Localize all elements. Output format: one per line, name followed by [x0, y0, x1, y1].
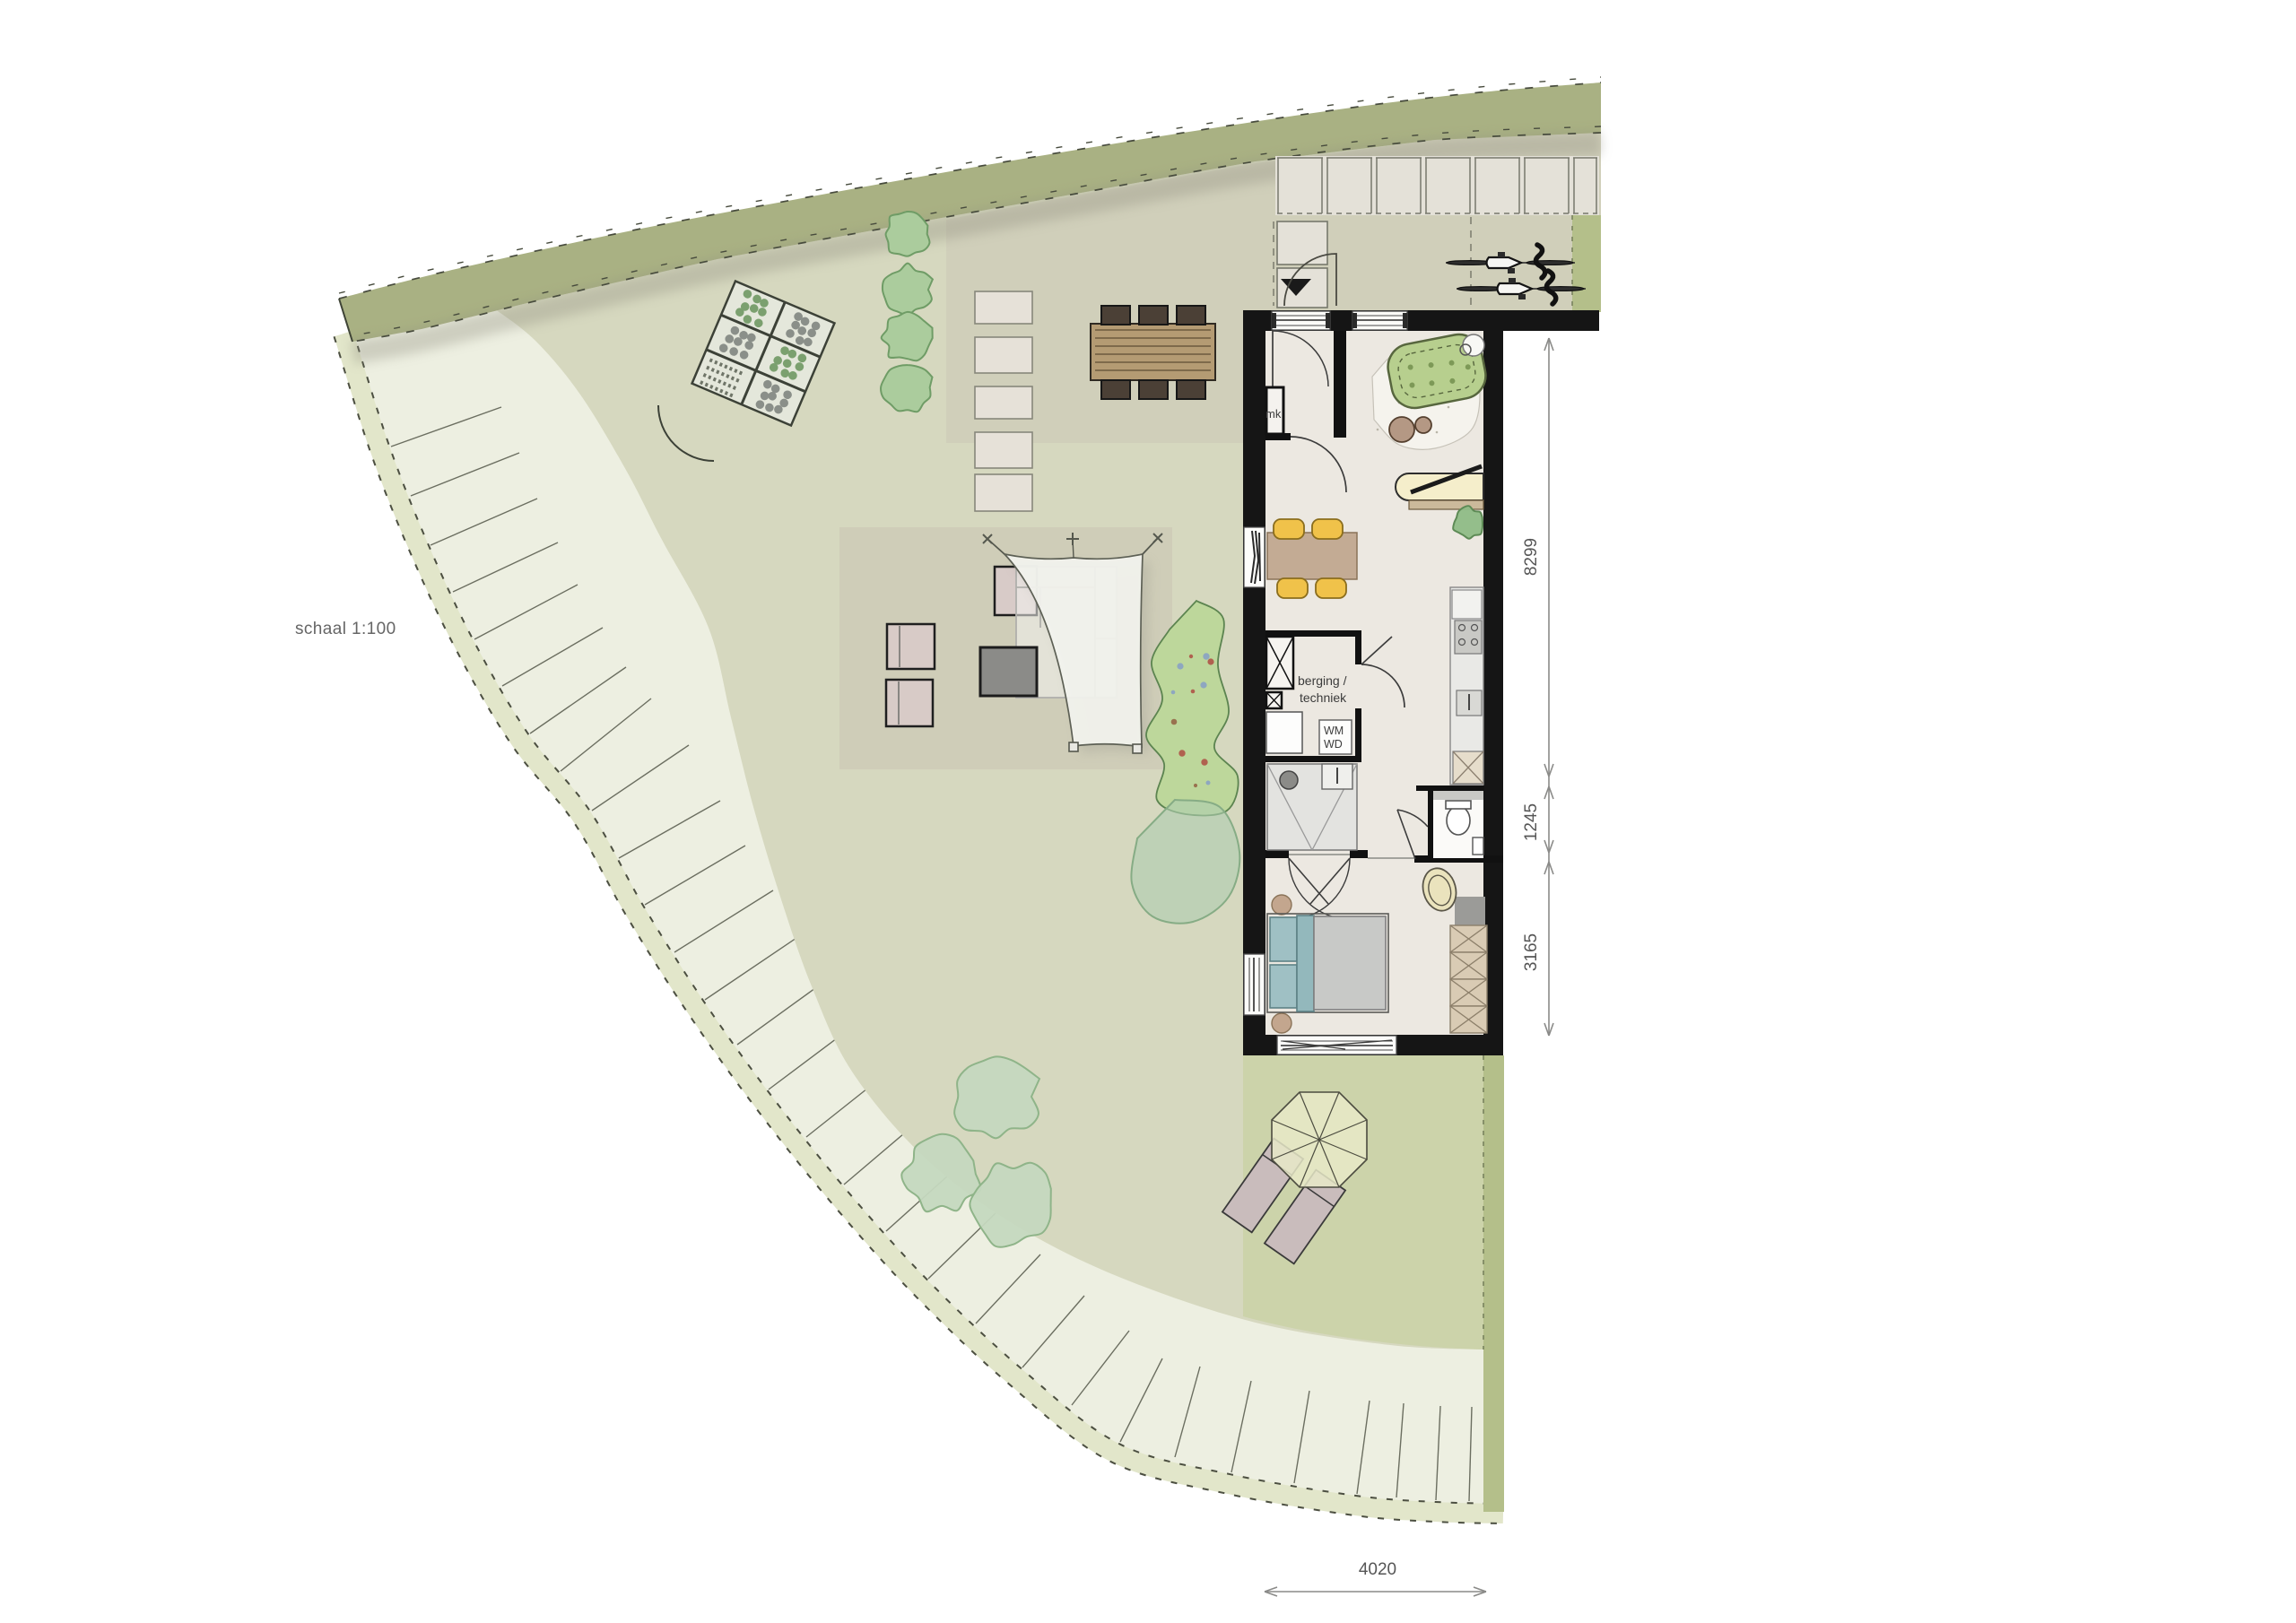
svg-text:mk: mk [1265, 407, 1282, 421]
svg-text:WD: WD [1324, 738, 1343, 751]
svg-text:4020: 4020 [1359, 1560, 1396, 1579]
svg-text:WM: WM [1324, 725, 1344, 737]
svg-text:techniek: techniek [1300, 690, 1347, 705]
svg-text:3165: 3165 [1522, 933, 1541, 971]
svg-text:berging /: berging / [1298, 673, 1347, 688]
svg-text:8299: 8299 [1522, 538, 1541, 576]
svg-text:1245: 1245 [1522, 803, 1541, 841]
svg-text:schaal 1:100: schaal 1:100 [295, 620, 396, 638]
